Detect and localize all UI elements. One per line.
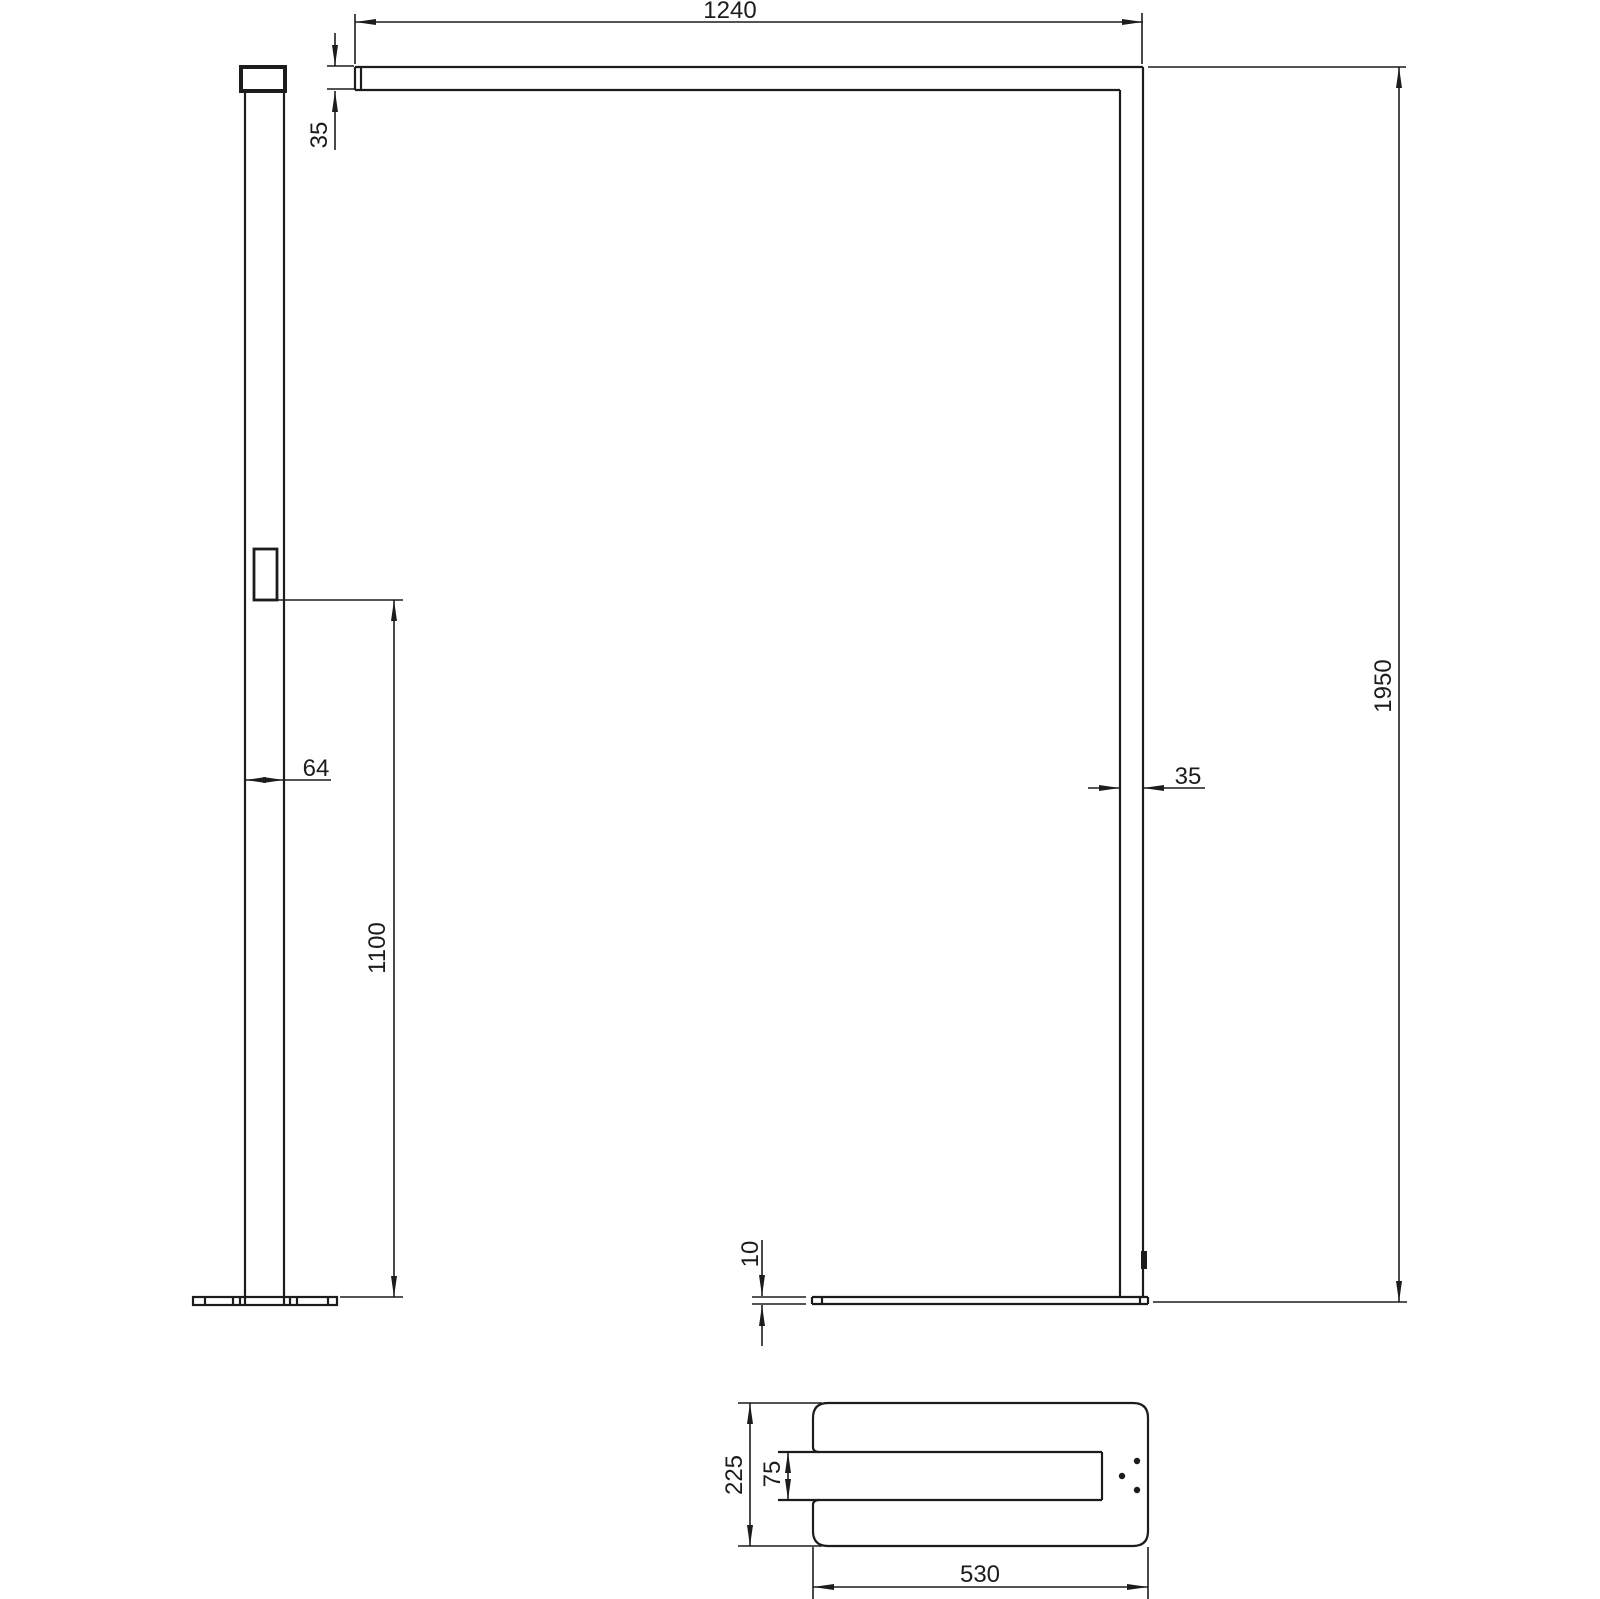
base-plate-outline bbox=[813, 1403, 1148, 1546]
touch-button-dot bbox=[1134, 1487, 1140, 1493]
dimension-value: 530 bbox=[960, 1561, 1000, 1588]
side-view bbox=[193, 67, 337, 1305]
dim-base-length: 530 bbox=[813, 1547, 1148, 1599]
dimension-value: 75 bbox=[759, 1461, 786, 1488]
dimension-value: 1240 bbox=[703, 0, 756, 24]
base-plan-view bbox=[778, 1403, 1148, 1546]
dim-total-height: 1950 bbox=[1148, 67, 1407, 1302]
dimension-value: 35 bbox=[1175, 763, 1202, 790]
dim-pole-width: 35 bbox=[1088, 763, 1205, 790]
dim-pole-depth: 64 bbox=[245, 755, 331, 782]
touch-button-dot bbox=[1134, 1458, 1140, 1464]
dim-luminaire-length: 1240 bbox=[355, 0, 1143, 64]
dimension-value: 1100 bbox=[364, 922, 391, 974]
base-plate-outline bbox=[193, 1297, 337, 1305]
power-switch bbox=[1141, 1251, 1147, 1269]
dimension-value: 35 bbox=[306, 122, 333, 149]
dimension-value: 10 bbox=[737, 1241, 764, 1268]
dim-head-height: 35 bbox=[306, 33, 354, 150]
base-plate-front-view bbox=[812, 1297, 1148, 1304]
technical-drawing: 1240 35 64 1100 1950 bbox=[0, 0, 1600, 1599]
touch-buttons bbox=[1119, 1458, 1140, 1493]
dim-control-height: 1100 bbox=[278, 600, 403, 1297]
drawing-canvas: 1240 35 64 1100 1950 bbox=[0, 0, 1600, 1599]
dimension-value: 1950 bbox=[1370, 659, 1397, 712]
base-plate-side-view bbox=[193, 1297, 337, 1305]
dimension-value: 225 bbox=[721, 1455, 748, 1495]
touch-button-dot bbox=[1119, 1473, 1125, 1479]
dimension-value: 64 bbox=[303, 755, 330, 782]
front-view bbox=[355, 67, 1148, 1304]
dim-base-thickness: 10 bbox=[737, 1240, 806, 1346]
lamp-head-cap bbox=[241, 67, 285, 91]
dim-base-slot-width: 75 bbox=[759, 1452, 788, 1500]
dimensions: 1240 35 64 1100 1950 bbox=[245, 0, 1407, 1599]
control-panel bbox=[254, 549, 277, 600]
